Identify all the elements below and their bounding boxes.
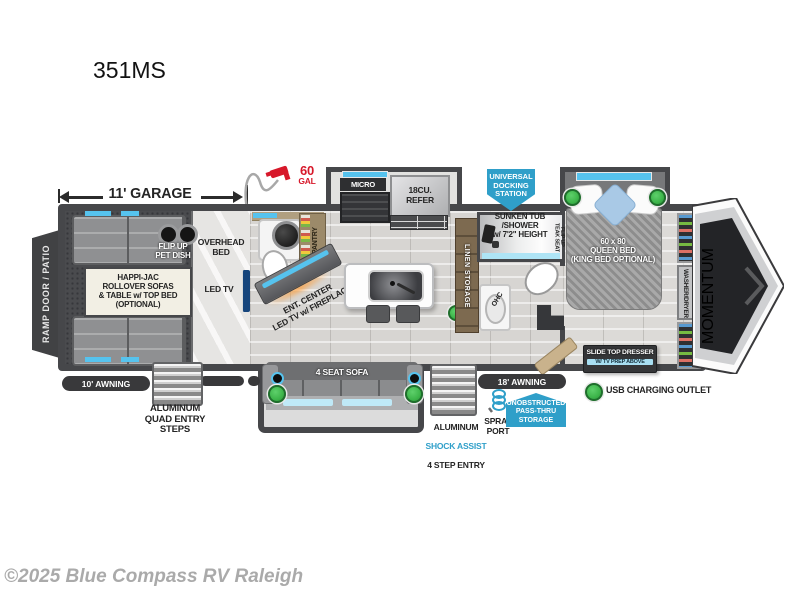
dresser-sublabel: W/ TV PREP ABOVE — [587, 359, 653, 365]
usb-outlet-marker — [649, 189, 666, 206]
sofa-led-strip — [283, 399, 333, 406]
arrowhead-left-icon — [59, 191, 69, 203]
bar-stool — [366, 305, 390, 323]
usb-outlet-marker — [405, 385, 423, 403]
range-oven — [340, 192, 390, 223]
window-strip — [342, 171, 388, 178]
awning-left-label: 10' AWNING — [62, 376, 150, 391]
awning-rail — [248, 376, 260, 386]
cup-holder-icon — [271, 372, 284, 385]
slide-top-dresser: SLIDE TOP DRESSER W/ TV PREP ABOVE — [583, 345, 657, 373]
usb-legend-label: USB CHARGING OUTLET — [606, 385, 736, 395]
spray-port-icon — [486, 388, 508, 416]
ramp-door-label: RAMP DOOR / PATIO — [41, 239, 51, 349]
linen-storage-label: LINEN STORAGE — [462, 223, 470, 328]
shock-assist-steps — [430, 364, 477, 416]
linen-storage: LINEN STORAGE — [455, 218, 479, 333]
garage-led-tv-label: LED TV — [196, 285, 242, 295]
page-title: 351MS — [93, 57, 166, 84]
quad-entry-steps — [152, 362, 203, 406]
dimension-line-left — [69, 196, 103, 199]
sink-icon — [272, 221, 301, 250]
shower-control-icon — [492, 241, 499, 248]
sofa-led-strip — [342, 399, 392, 406]
sink-drain-icon — [390, 281, 395, 286]
refrigerator: 18CU. REFER — [390, 175, 450, 217]
kitchen-island — [344, 263, 434, 309]
pass-thru-badge: UNOBSTRUCTED PASS-THRU STORAGE — [506, 393, 566, 427]
awning-right-label: 18' AWNING — [478, 374, 566, 389]
dresser-label: SLIDE TOP DRESSER — [584, 349, 656, 357]
microwave: MICRO — [340, 178, 386, 191]
brand-logo: MOMENTUM — [700, 232, 718, 344]
kitchen-drawers — [390, 215, 448, 230]
pet-dish-label: FLIP UP PET DISH — [148, 243, 198, 261]
window-strip — [576, 172, 652, 181]
happi-jac-label: HAPPI-JAC ROLLOVER SOFAS & TABLE w/ TOP … — [84, 267, 192, 317]
fuel-unit: GAL — [292, 177, 322, 187]
usb-legend-marker — [585, 383, 603, 401]
quad-steps-label: ALUMINUM QUAD ENTRY STEPS — [120, 404, 230, 436]
window-strip — [253, 213, 277, 218]
floorplan-page: 351MS 11' GARAGE 60 GAL RAMP DOOR / PATI… — [0, 0, 800, 600]
tub-glass-strip — [482, 253, 560, 259]
window-strip — [121, 211, 139, 216]
overhead-bed-label: OVERHEAD BED — [194, 238, 248, 257]
tub-label: SUNKEN TUB /SHOWER w/ 7'2" HEIGHT — [477, 213, 563, 240]
window-strip — [85, 357, 111, 362]
usb-outlet-marker — [564, 189, 581, 206]
shock-steps-line3: 4 STEP ENTRY — [420, 461, 492, 471]
shock-steps-line2: SHOCK ASSIST — [420, 442, 492, 452]
sofa-cushions — [266, 380, 418, 396]
window-strip — [85, 211, 111, 216]
garage-dimension-label: 11' GARAGE — [103, 186, 198, 203]
window-strip — [121, 357, 139, 362]
cup-holder-icon — [408, 372, 421, 385]
garage-tv-icon — [242, 270, 250, 312]
watermark: ©2025 Blue Compass RV Raleigh — [4, 566, 303, 588]
bar-stool — [396, 305, 420, 323]
queen-bed-label: 60 x 80 QUEEN BED (KING BED OPTIONAL) — [566, 238, 660, 265]
sofa-label: 4 SEAT SOFA — [266, 368, 418, 378]
usb-outlet-marker — [268, 385, 286, 403]
awning-rail — [200, 376, 244, 386]
island-sink-icon — [368, 270, 424, 302]
